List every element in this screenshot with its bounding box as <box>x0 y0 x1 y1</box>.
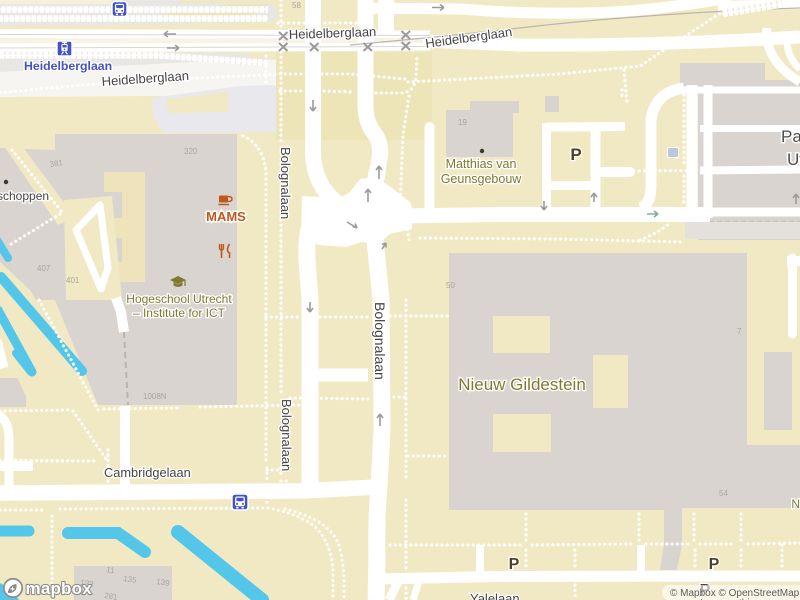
svg-text:Bolognalaan: Bolognalaan <box>372 302 388 380</box>
svg-text:50: 50 <box>446 281 455 290</box>
svg-text:Parkeer: Parkeer <box>781 127 800 146</box>
svg-text:Bolognalaan: Bolognalaan <box>279 399 294 471</box>
svg-text:407: 407 <box>37 264 51 273</box>
svg-text:320: 320 <box>184 147 198 156</box>
svg-text:Geunsgebouw: Geunsgebouw <box>441 172 523 186</box>
svg-text:– Institute for ICT: – Institute for ICT <box>133 306 226 320</box>
svg-text:135: 135 <box>123 574 138 585</box>
svg-text:54: 54 <box>719 489 728 498</box>
svg-text:mapbox: mapbox <box>26 579 93 598</box>
svg-text:P: P <box>509 556 520 573</box>
svg-text:Nieuw Gildestein: Nieuw Gildestein <box>458 375 586 394</box>
svg-text:Yalelaan: Yalelaan <box>470 591 520 600</box>
svg-text:19: 19 <box>458 118 467 127</box>
svg-text:P: P <box>570 145 581 164</box>
svg-text:Matthias van: Matthias van <box>446 157 517 171</box>
svg-text:P: P <box>709 556 720 573</box>
svg-text:MAMS: MAMS <box>206 209 246 224</box>
svg-text:139: 139 <box>156 577 171 588</box>
svg-text:Heidelberglaan: Heidelberglaan <box>289 24 377 42</box>
svg-text:Cambridgelaan: Cambridgelaan <box>104 465 191 480</box>
svg-text:Ni: Ni <box>791 497 800 511</box>
svg-text:281: 281 <box>104 591 119 600</box>
svg-text:Heidelberglaan: Heidelberglaan <box>24 59 112 73</box>
svg-text:381: 381 <box>49 158 64 169</box>
svg-text:schoppen: schoppen <box>0 189 49 203</box>
svg-text:Utrecht: Utrecht <box>787 150 800 169</box>
svg-text:1008N: 1008N <box>143 392 167 401</box>
svg-text:7: 7 <box>737 327 742 336</box>
svg-text:58: 58 <box>292 1 301 10</box>
svg-text:401: 401 <box>66 276 80 285</box>
svg-text:Bolognalaan: Bolognalaan <box>278 147 293 219</box>
svg-text:Hogeschool Utrecht: Hogeschool Utrecht <box>126 292 232 306</box>
